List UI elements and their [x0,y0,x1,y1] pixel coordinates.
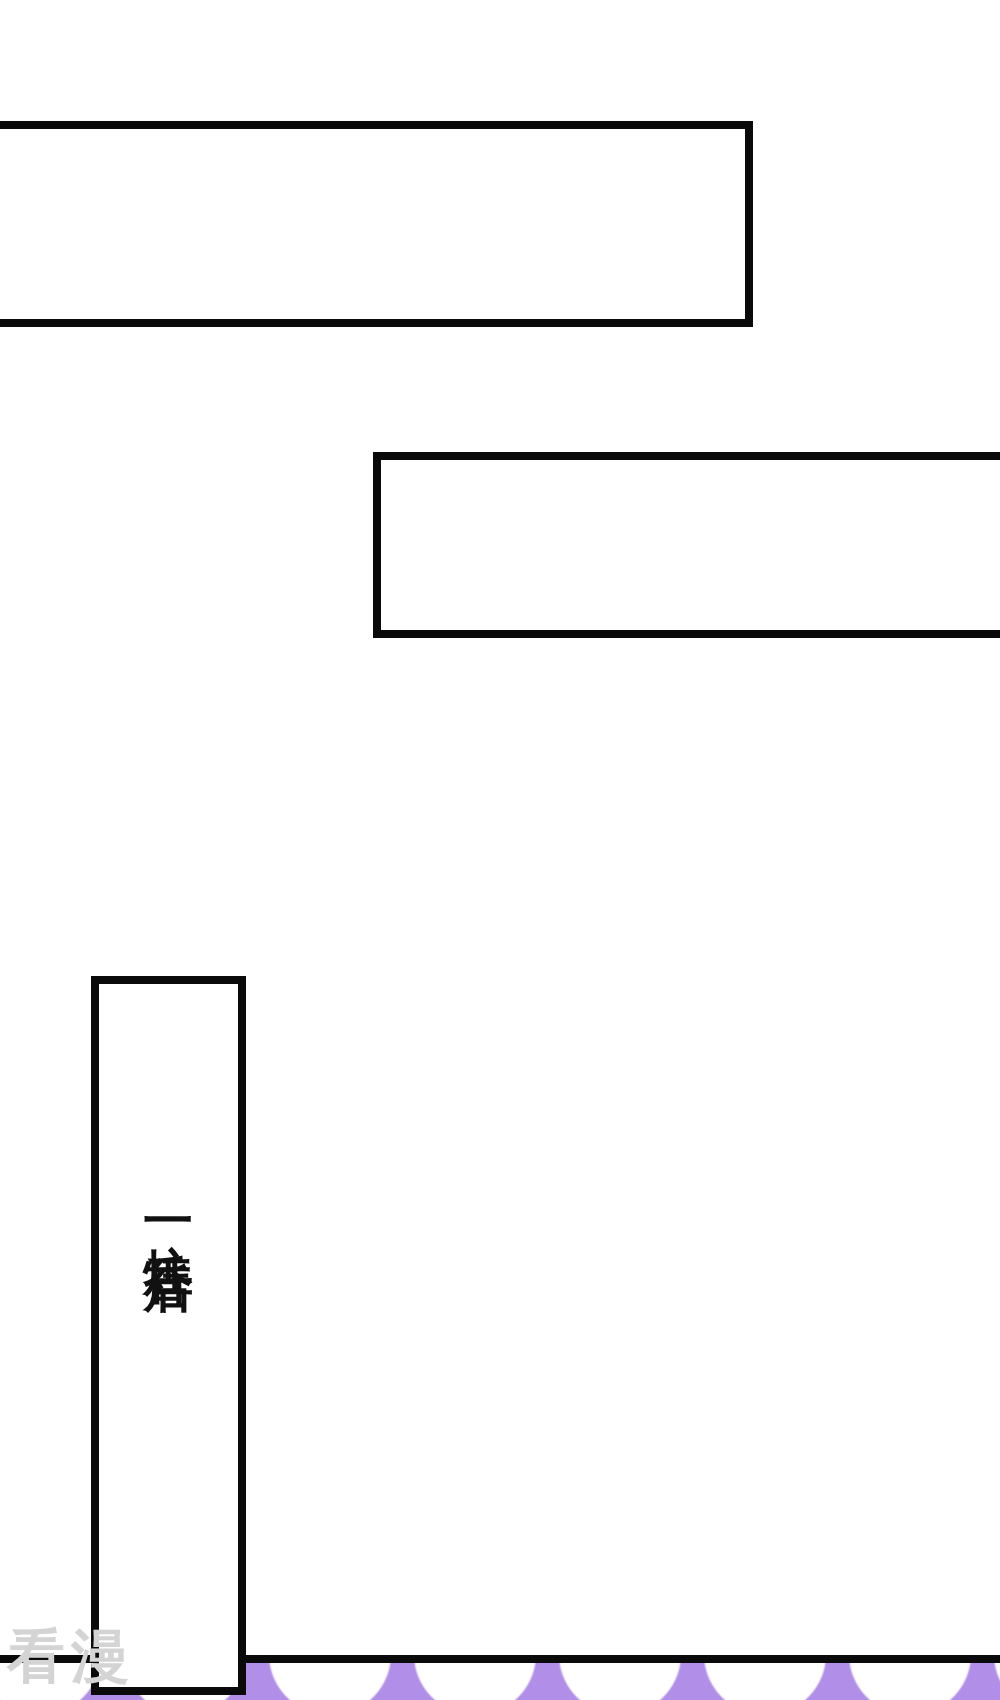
watermark-text: 看漫 [7,1627,135,1685]
caption-box-vertical: 一炷香后 [91,976,246,1695]
comic-page: 一炷香后 看漫 [0,0,1000,1700]
vertical-caption-text: 一炷香后 [144,1195,194,1687]
caption-box-top [0,121,753,327]
caption-box-middle [373,452,1000,638]
